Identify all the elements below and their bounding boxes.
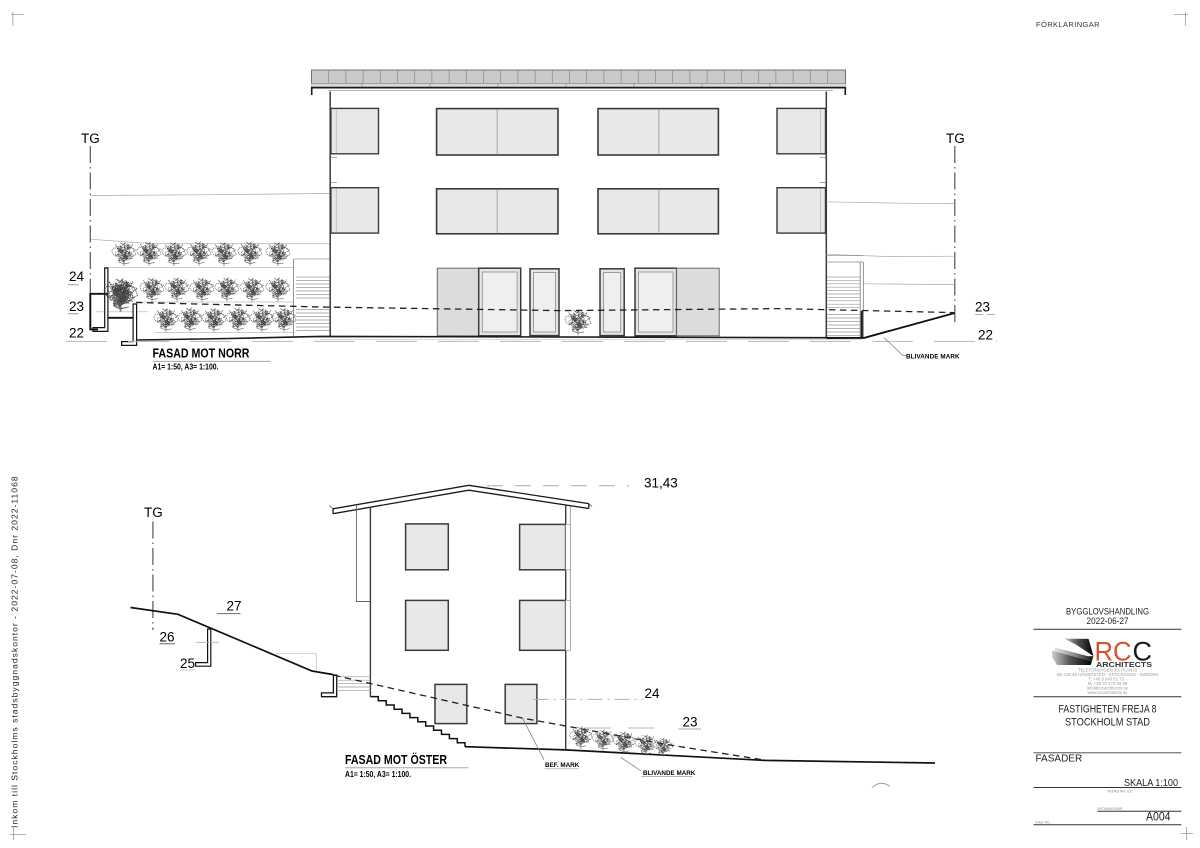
- svg-text:www.rccarchitects.se: www.rccarchitects.se: [1087, 690, 1128, 695]
- svg-text:FASADER: FASADER: [1036, 754, 1083, 765]
- svg-text:BLIVANDE MARK: BLIVANDE MARK: [906, 354, 960, 361]
- svg-text:TG: TG: [946, 131, 965, 146]
- svg-text:BYGGLOVSHANDLING: BYGGLOVSHANDLING: [1066, 607, 1149, 617]
- svg-text:BEF. MARK: BEF. MARK: [545, 762, 580, 769]
- svg-text:TG: TG: [144, 505, 163, 520]
- svg-text:FÖRKLARINGAR: FÖRKLARINGAR: [1036, 20, 1100, 29]
- svg-text:BLIVANDE MARK: BLIVANDE MARK: [643, 770, 696, 777]
- svg-text:23: 23: [975, 300, 990, 315]
- svg-text:23: 23: [69, 299, 84, 314]
- svg-text:2022-06-27: 2022-06-27: [1087, 616, 1129, 626]
- svg-text:RITNINGSNR: RITNINGSNR: [1098, 806, 1123, 811]
- svg-text:23: 23: [683, 715, 698, 730]
- svg-text:FASAD MOT ÖSTER: FASAD MOT ÖSTER: [345, 752, 447, 767]
- svg-text:FASTIGHETEN FREJA 8: FASTIGHETEN FREJA 8: [1059, 704, 1157, 716]
- svg-text:FASAD MOT NORR: FASAD MOT NORR: [153, 346, 250, 361]
- svg-text:A1= 1:50, A3= 1:100.: A1= 1:50, A3= 1:100.: [153, 362, 219, 371]
- svg-text:CAD-FIL: CAD-FIL: [1035, 820, 1051, 825]
- svg-text:22: 22: [978, 328, 993, 343]
- svg-text:27: 27: [227, 599, 242, 614]
- svg-text:STOCKHOLM STAD: STOCKHOLM STAD: [1065, 717, 1150, 729]
- svg-text:22: 22: [69, 326, 84, 341]
- svg-text:RITAD AV: EC: RITAD AV: EC: [1108, 789, 1133, 794]
- svg-text:26: 26: [160, 630, 175, 645]
- svg-text:24: 24: [69, 269, 85, 284]
- svg-text:TG: TG: [81, 131, 100, 146]
- svg-text:A1= 1:50, A3= 1:100.: A1= 1:50, A3= 1:100.: [345, 770, 411, 779]
- svg-text:31,43: 31,43: [644, 476, 678, 491]
- svg-text:24: 24: [645, 686, 661, 701]
- svg-text:A004: A004: [1146, 810, 1171, 824]
- svg-text:25: 25: [180, 656, 195, 671]
- svg-text:Inkom till Stockholms stadsbyg: Inkom till Stockholms stadsbyggnadskonto…: [10, 475, 20, 828]
- svg-text:SKALA 1:100: SKALA 1:100: [1124, 778, 1178, 789]
